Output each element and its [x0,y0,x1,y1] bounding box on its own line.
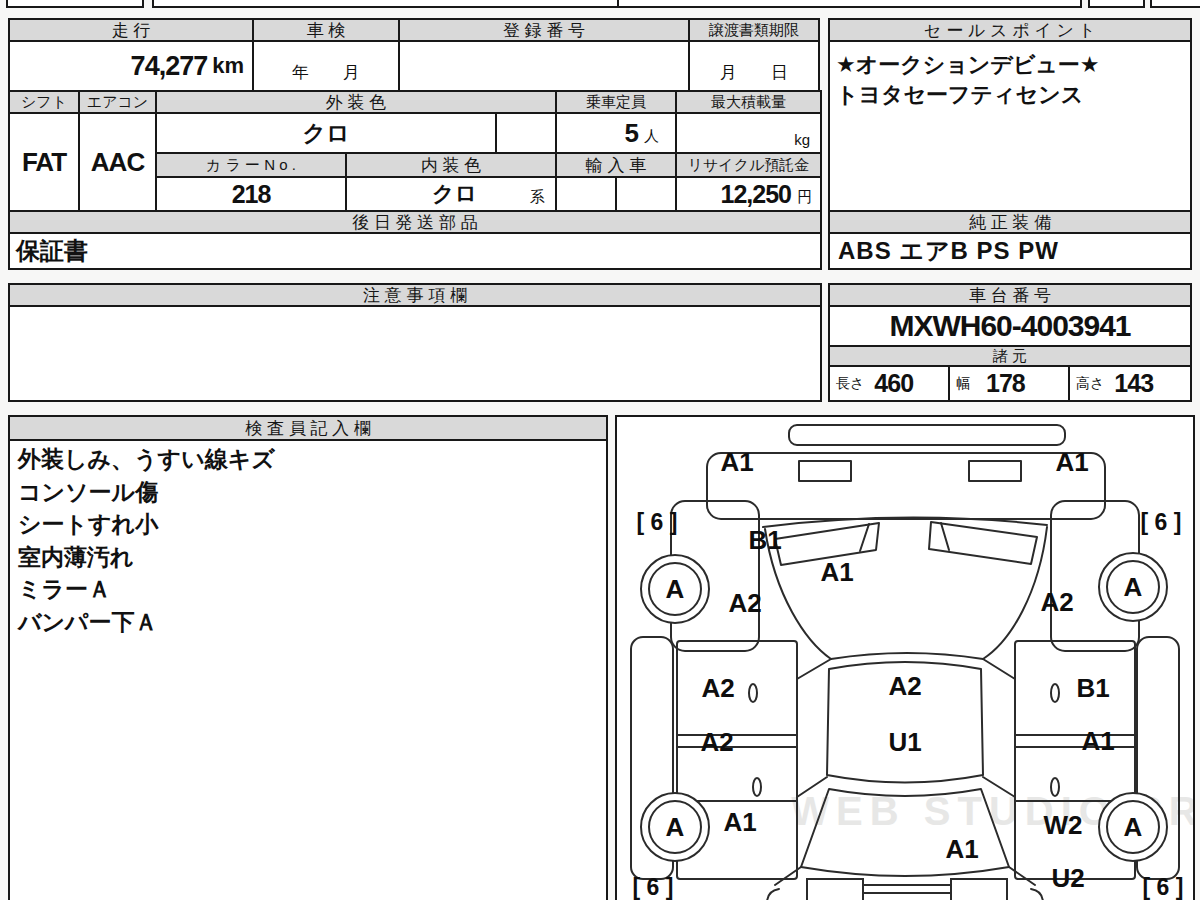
door-handle [1051,778,1059,796]
damage-code-rear-door-right: A1 [1081,726,1114,756]
wheel-mark: A [666,574,685,604]
spec-width: 幅 178 [948,365,1070,402]
inspector-line: コンソール傷 [18,476,598,509]
mileage-header: 走 行 [8,18,254,42]
door-handle [1051,684,1059,702]
max-load-unit: kg [794,131,810,148]
aircon-value: AAC [78,112,157,212]
damage-code-roof: A2 [888,671,921,701]
vehicle-diagram-box: WEB STUDIO PRO [615,415,1195,900]
notes-body [8,305,822,402]
capacity-number: 5 [625,118,638,149]
exterior-color-header: 外 装 色 [155,90,557,114]
cutoff-cell [152,0,619,8]
damage-code-front-bumper-left: A1 [720,447,753,477]
windshield-right [929,522,1037,564]
inspector-header: 検 査 員 記 入 欄 [8,415,608,441]
tire-mark-rear-left: [ 6 ] [633,874,674,900]
mileage-unit: km [212,53,244,79]
registration-number-value [398,40,690,92]
spec-height-value: 143 [1114,369,1153,398]
capacity-unit: 人 [644,127,659,146]
vehicle-diagram: WEB STUDIO PRO [617,417,1193,900]
inspector-line: シートすれ小 [18,508,598,541]
shift-header: シフト [8,90,80,114]
spec-width-label: 幅 [956,375,970,393]
exterior-color-extra-cell [495,112,557,154]
max-load-value: kg [675,112,822,154]
damage-code-front-door-right: B1 [1076,673,1109,703]
wheel-rear-left: A [641,793,709,861]
import-car-header: 輸 入 車 [555,152,677,178]
grille-left-outline [799,461,851,481]
rear-spoiler-outline [789,425,1065,445]
capacity-header: 乗車定員 [555,90,677,114]
max-load-header: 最大積載量 [675,90,822,114]
color-no-header: カ ラ ー N o . [155,152,347,178]
interior-color-suffix: 系 [530,188,545,207]
inspector-line: 外装しみ、うすい線キズ [18,443,598,476]
wheel-mark: A [1124,572,1143,602]
sales-point-line-2: トヨタセーフティセンス [836,80,1184,110]
inspector-body: 外装しみ、うすい線キズ コンソール傷 シートすれ小 室内薄汚れ ミラーＡ バンパ… [8,439,608,900]
rear-bumper-tab-right [951,879,1007,900]
interior-color-text: クロ [432,179,477,209]
door-handle [753,778,761,796]
damage-code-front-right: A2 [1040,587,1073,617]
front-bumper-outline [707,453,1105,519]
damage-code-front-fender-left: B1 [748,525,781,555]
later-parts-header: 後 日 発 送 部 品 [8,210,822,234]
capacity-value: 5 人 [555,112,677,154]
damage-code-rear-glass: A1 [945,834,978,864]
damage-code-front-left: A2 [728,588,761,618]
shift-value: FAT [8,112,80,212]
spec-height: 高さ 143 [1068,365,1192,402]
inspector-line: ミラーＡ [18,573,598,606]
rear-bumper-tab-left [807,879,863,900]
spec-length: 長さ 460 [828,365,950,402]
sales-point-body: ★オークションデビュー★ トヨタセーフティセンス [828,40,1192,212]
inspection-header: 車 検 [252,18,400,42]
wiper-line-right [941,523,949,550]
sales-point-header: セ ー ル ス ポ イ ン ト [828,18,1192,42]
recycle-deposit-header: リサイクル預託金 [675,152,822,178]
inspector-line: バンパー下Ａ [18,606,598,639]
recycle-deposit-value: 12,250 円 [675,176,822,212]
tire-mark-front-left: [ 6 ] [637,509,678,535]
cutoff-cell [6,0,144,8]
grille-right-outline [969,461,1021,481]
specs-header: 諸 元 [828,345,1192,367]
wiper-line-left [860,524,869,551]
registration-number-header: 登 録 番 号 [398,18,690,42]
door-handle [749,684,757,702]
cutoff-cell [617,0,1082,8]
exterior-color-value: クロ [155,112,497,154]
inspection-value: 年 月 [252,40,400,92]
aircon-header: エアコン [78,90,157,114]
auction-sheet: 走 行 車 検 登 録 番 号 譲渡書類期限 74,277 km 年 月 月 日… [0,0,1200,900]
recycle-number: 12,250 [721,180,791,209]
import-car-cell-1 [555,176,617,212]
hood-edge-right [983,527,1047,659]
chassis-number-value: MXWH60-4003941 [828,305,1192,347]
mileage-number: 74,277 [131,51,208,82]
interior-color-value: クロ 系 [345,176,557,212]
notes-header: 注 意 事 項 欄 [8,283,822,307]
wheel-front-right: A [1099,553,1167,621]
wheel-mark: A [1124,812,1143,842]
spec-length-label: 長さ [836,375,864,393]
damage-code-floor: U1 [888,727,921,757]
damage-code-hood: A1 [820,557,853,587]
import-car-cell-2 [615,176,677,212]
spec-height-label: 高さ [1076,375,1104,393]
spec-length-value: 460 [874,369,913,398]
wheel-mark: A [666,812,685,842]
sales-point-line-1: ★オークションデビュー★ [836,50,1184,80]
cutoff-cell [1088,0,1145,8]
genuine-equipment-value: ABS エアB PS PW [828,232,1192,270]
inspector-line: 室内薄汚れ [18,541,598,574]
recycle-unit: 円 [797,188,812,207]
hood-front-edge [831,653,983,659]
tire-mark-front-right: [ 6 ] [1141,509,1182,535]
wheel-front-left: A [641,555,709,623]
later-parts-value: 保証書 [8,232,822,270]
damage-code-rear-fender-left: A1 [723,807,756,837]
transfer-docs-value: 月 日 [688,40,820,92]
damage-code-rear-door-left: A2 [700,727,733,757]
damage-code-rear-right-lower: U2 [1051,863,1084,893]
damage-code-rear-fender-right: W2 [1044,810,1083,840]
color-no-value: 218 [155,176,347,212]
transfer-docs-header: 譲渡書類期限 [688,18,820,42]
damage-code-front-bumper-right: A1 [1055,447,1088,477]
damage-code-front-door-left: A2 [701,673,734,703]
wheel-rear-right: A [1099,793,1167,861]
mileage-value: 74,277 km [8,40,254,92]
chassis-number-header: 車 台 番 号 [828,283,1192,307]
interior-color-header: 内 装 色 [345,152,557,178]
spec-width-value: 178 [986,369,1025,398]
tire-mark-rear-right: [ 6 ] [1143,874,1184,900]
cutoff-cell [1150,0,1200,8]
genuine-equipment-header: 純 正 装 備 [828,210,1192,234]
